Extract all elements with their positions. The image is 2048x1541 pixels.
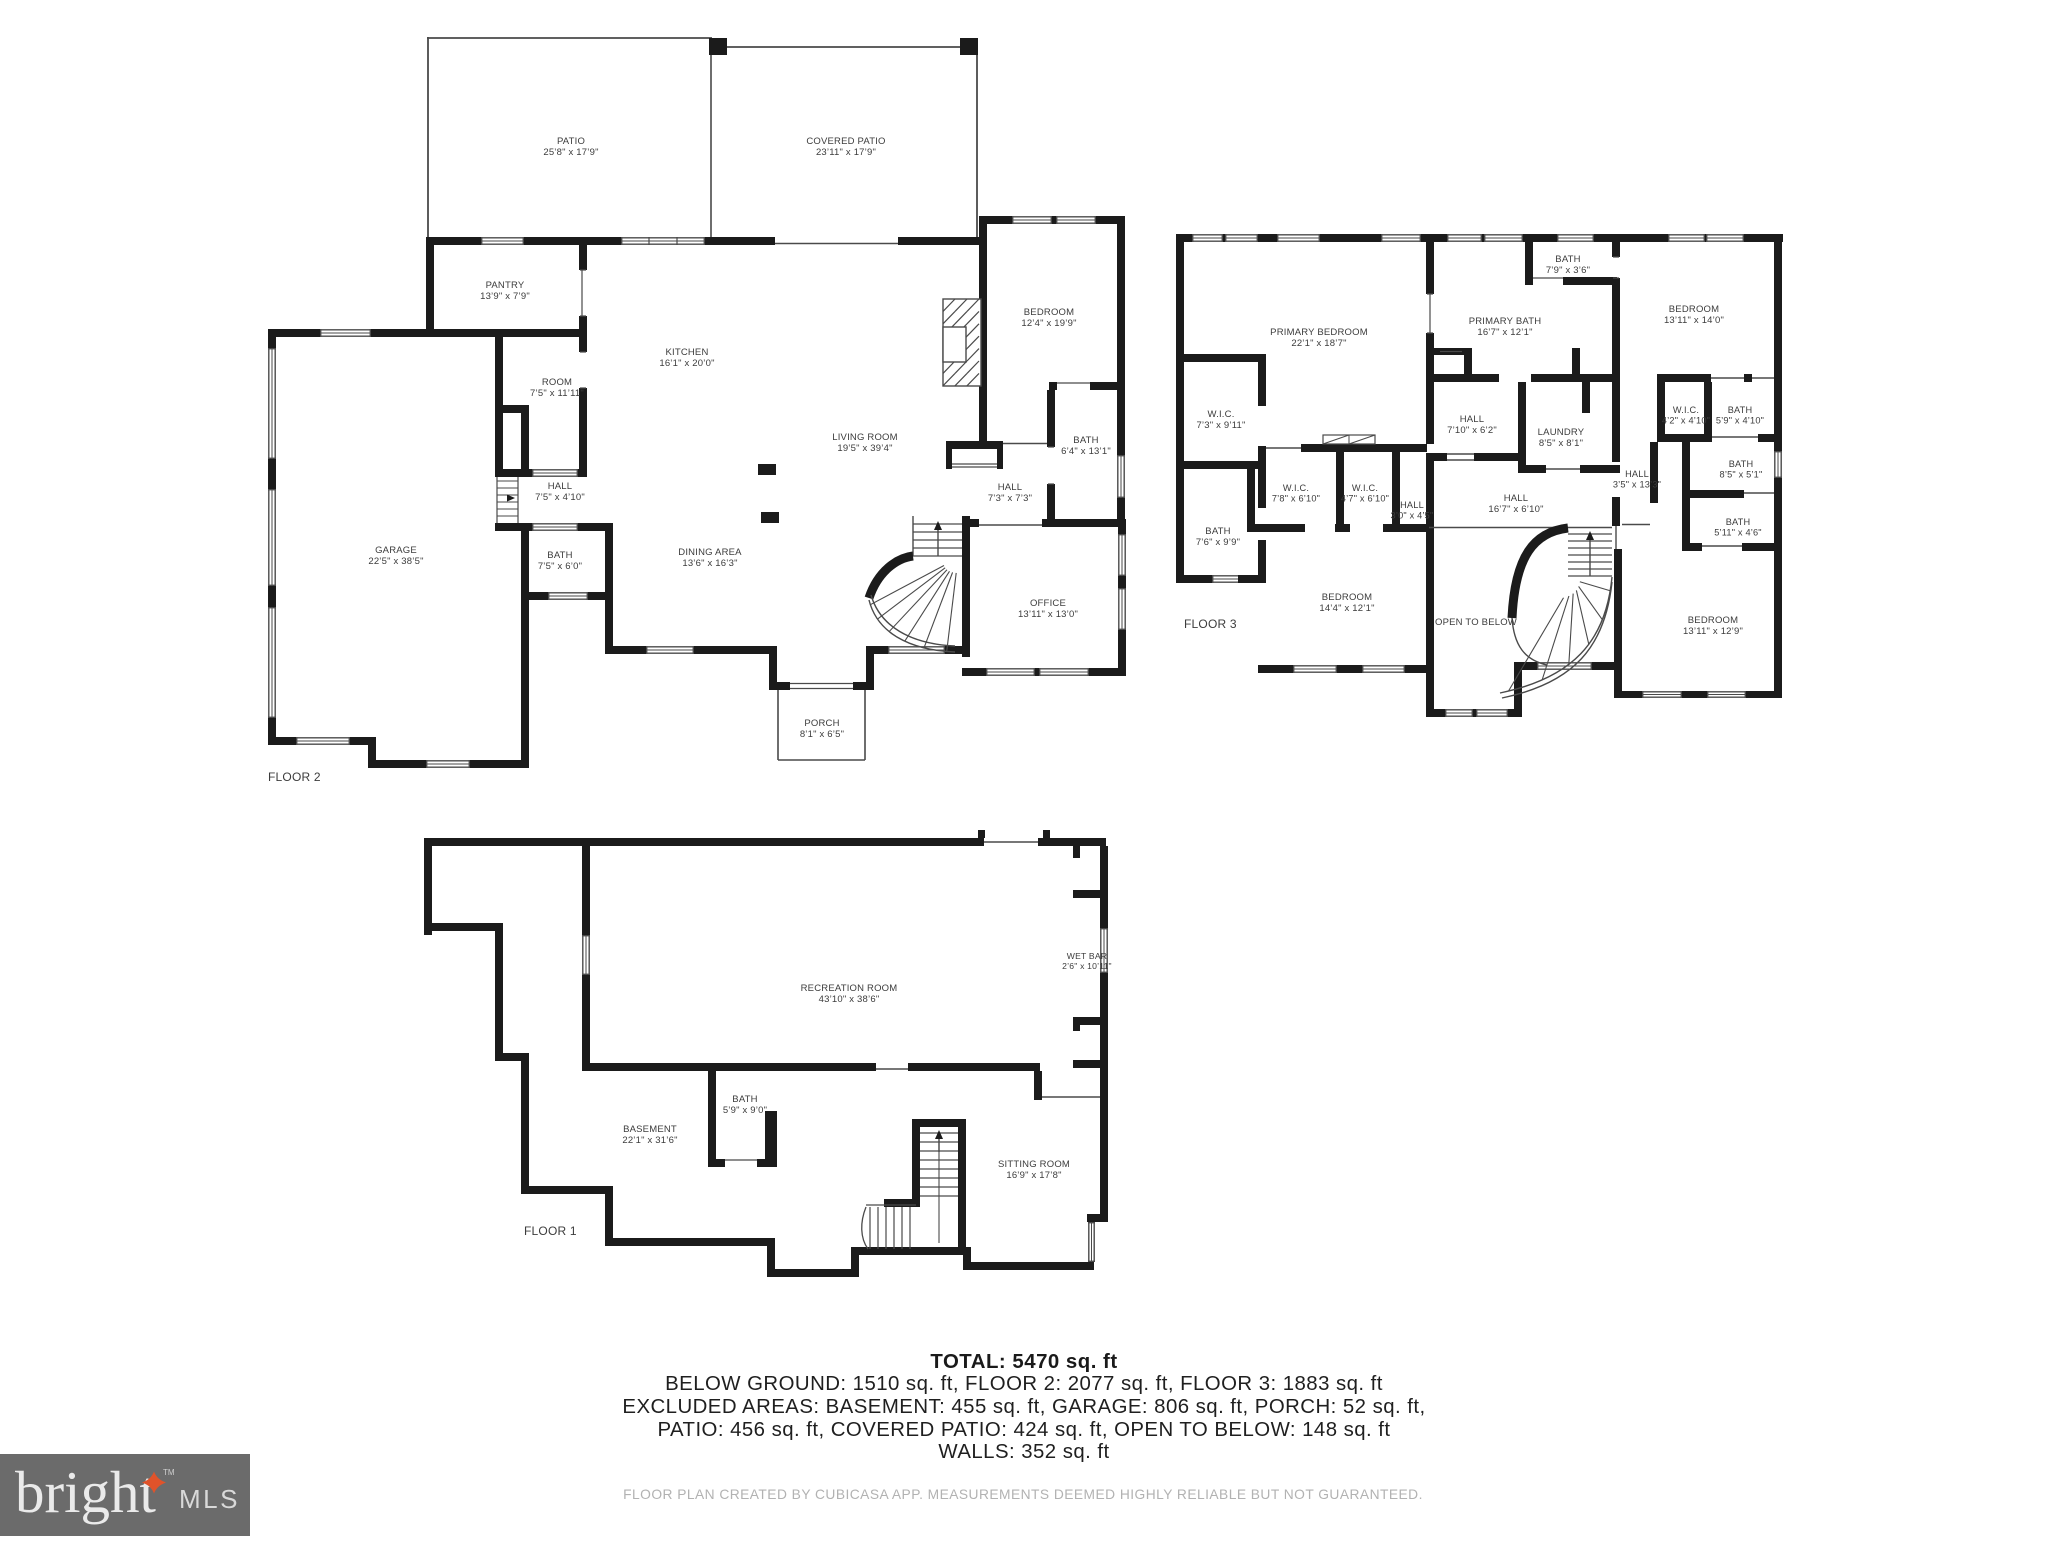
svg-text:22’1" x 18’7": 22’1" x 18’7" bbox=[1291, 338, 1346, 349]
svg-text:FLOOR 3: FLOOR 3 bbox=[1184, 617, 1237, 631]
svg-text:14’4" x 12’1": 14’4" x 12’1" bbox=[1319, 603, 1374, 614]
svg-text:BATH: BATH bbox=[1205, 526, 1230, 537]
svg-text:5’11" x 4’6": 5’11" x 4’6" bbox=[1714, 528, 1762, 538]
svg-text:16’9" x 17’8": 16’9" x 17’8" bbox=[1006, 1170, 1061, 1181]
svg-text:RECREATION ROOM: RECREATION ROOM bbox=[801, 983, 898, 994]
svg-text:4’2" x 4’10": 4’2" x 4’10" bbox=[1662, 416, 1710, 426]
svg-text:BEDROOM: BEDROOM bbox=[1669, 304, 1720, 315]
svg-text:OPEN TO BELOW: OPEN TO BELOW bbox=[1435, 617, 1517, 628]
svg-text:BASEMENT: BASEMENT bbox=[623, 1124, 677, 1135]
svg-text:13’11" x 14’0": 13’11" x 14’0" bbox=[1664, 315, 1724, 326]
svg-text:HALL: HALL bbox=[998, 482, 1023, 493]
svg-text:FLOOR 1: FLOOR 1 bbox=[524, 1224, 577, 1238]
svg-text:PATIO: PATIO bbox=[557, 136, 585, 147]
svg-text:PRIMARY BEDROOM: PRIMARY BEDROOM bbox=[1270, 327, 1368, 338]
svg-text:TM: TM bbox=[163, 1468, 175, 1477]
svg-text:OFFICE: OFFICE bbox=[1030, 598, 1066, 609]
svg-text:7’8" x 6’10": 7’8" x 6’10" bbox=[1272, 494, 1320, 504]
svg-text:43’10" x 38’6": 43’10" x 38’6" bbox=[819, 994, 880, 1005]
svg-text:BATH: BATH bbox=[1726, 517, 1751, 527]
svg-text:23’11" x 17’9": 23’11" x 17’9" bbox=[816, 147, 876, 158]
svg-text:PORCH: PORCH bbox=[804, 718, 839, 729]
svg-text:GARAGE: GARAGE bbox=[375, 545, 417, 556]
svg-text:13’9" x 7’9": 13’9" x 7’9" bbox=[480, 291, 530, 302]
svg-text:25’8" x 17’9": 25’8" x 17’9" bbox=[543, 147, 598, 158]
svg-text:BATH: BATH bbox=[1729, 459, 1754, 469]
svg-text:BEDROOM: BEDROOM bbox=[1024, 307, 1075, 318]
svg-text:BATH: BATH bbox=[1728, 405, 1753, 415]
svg-text:HALL: HALL bbox=[548, 481, 573, 492]
svg-text:4’7" x 6’10": 4’7" x 6’10" bbox=[1341, 494, 1389, 504]
svg-text:DINING AREA: DINING AREA bbox=[678, 547, 742, 558]
svg-text:16’1" x 20’0": 16’1" x 20’0" bbox=[659, 358, 714, 369]
svg-text:3’5" x 13’3": 3’5" x 13’3" bbox=[1613, 480, 1661, 490]
svg-text:W.I.C.: W.I.C. bbox=[1352, 483, 1378, 493]
svg-text:13’11" x 12’9": 13’11" x 12’9" bbox=[1683, 626, 1743, 637]
svg-text:PRIMARY BATH: PRIMARY BATH bbox=[1469, 316, 1542, 327]
svg-text:MLS: MLS bbox=[179, 1484, 240, 1514]
svg-text:BEDROOM: BEDROOM bbox=[1322, 592, 1373, 603]
svg-text:7’3" x 9’11": 7’3" x 9’11" bbox=[1196, 420, 1245, 431]
svg-text:TOTAL: 5470 sq. ft: TOTAL: 5470 sq. ft bbox=[930, 1351, 1117, 1373]
svg-text:BEDROOM: BEDROOM bbox=[1688, 615, 1739, 626]
svg-text:W.I.C.: W.I.C. bbox=[1283, 483, 1309, 493]
svg-text:2’6" x 10’11": 2’6" x 10’11" bbox=[1062, 961, 1112, 971]
svg-text:19’5" x 39’4": 19’5" x 39’4" bbox=[837, 443, 892, 454]
svg-text:W.I.C.: W.I.C. bbox=[1207, 409, 1234, 420]
svg-text:KITCHEN: KITCHEN bbox=[665, 347, 708, 358]
svg-text:PATIO: 456 sq. ft, COVERED PAT: PATIO: 456 sq. ft, COVERED PATIO: 424 sq… bbox=[657, 1419, 1390, 1441]
svg-text:7’5" x 11’11": 7’5" x 11’11" bbox=[530, 388, 584, 399]
svg-text:bright: bright bbox=[15, 1459, 157, 1525]
svg-text:16’7" x 6’10": 16’7" x 6’10" bbox=[1488, 504, 1543, 515]
svg-text:8’5" x 8’1": 8’5" x 8’1" bbox=[1539, 438, 1583, 449]
svg-text:LIVING ROOM: LIVING ROOM bbox=[832, 432, 898, 443]
svg-text:8’1" x 6’5": 8’1" x 6’5" bbox=[800, 729, 844, 740]
svg-text:EXCLUDED AREAS: BASEMENT: 455: EXCLUDED AREAS: BASEMENT: 455 sq. ft, GA… bbox=[622, 1396, 1425, 1418]
svg-text:FLOOR 2: FLOOR 2 bbox=[268, 770, 321, 784]
svg-text:22’5" x 38’5": 22’5" x 38’5" bbox=[368, 556, 423, 567]
svg-text:16’7" x 12’1": 16’7" x 12’1" bbox=[1477, 327, 1532, 338]
svg-text:5’9" x 4’10": 5’9" x 4’10" bbox=[1716, 416, 1764, 426]
svg-text:HALL: HALL bbox=[1460, 414, 1485, 425]
svg-text:PANTRY: PANTRY bbox=[486, 280, 525, 291]
svg-text:7’9" x 3’6": 7’9" x 3’6" bbox=[1546, 265, 1590, 276]
svg-text:ROOM: ROOM bbox=[542, 377, 572, 388]
svg-text:W.I.C.: W.I.C. bbox=[1673, 405, 1699, 415]
svg-text:HALL: HALL bbox=[1504, 493, 1529, 504]
svg-text:22’1" x 31’6": 22’1" x 31’6" bbox=[622, 1135, 677, 1146]
svg-text:BELOW GROUND: 1510 sq. ft, FLO: BELOW GROUND: 1510 sq. ft, FLOOR 2: 2077… bbox=[665, 1373, 1383, 1395]
svg-text:WALLS: 352 sq. ft: WALLS: 352 sq. ft bbox=[938, 1441, 1109, 1463]
svg-text:WET BAR: WET BAR bbox=[1067, 951, 1107, 961]
svg-text:BATH: BATH bbox=[732, 1094, 757, 1105]
svg-text:8’5" x 5’1": 8’5" x 5’1" bbox=[1720, 470, 1763, 480]
svg-text:12’4" x 19’9": 12’4" x 19’9" bbox=[1021, 318, 1076, 329]
svg-text:7’3" x 7’3": 7’3" x 7’3" bbox=[988, 493, 1032, 504]
svg-text:3’0" x 4’5": 3’0" x 4’5" bbox=[1391, 511, 1434, 521]
svg-text:COVERED PATIO: COVERED PATIO bbox=[806, 136, 885, 147]
svg-text:FLOOR PLAN CREATED BY CUBICASA: FLOOR PLAN CREATED BY CUBICASA APP. MEAS… bbox=[623, 1487, 1423, 1502]
svg-text:7’5" x 6’0": 7’5" x 6’0" bbox=[538, 561, 582, 572]
svg-text:BATH: BATH bbox=[547, 550, 572, 561]
svg-text:SITTING ROOM: SITTING ROOM bbox=[998, 1159, 1070, 1170]
svg-text:13’11" x 13’0": 13’11" x 13’0" bbox=[1018, 609, 1078, 620]
svg-text:13’6" x 16’3": 13’6" x 16’3" bbox=[682, 558, 737, 569]
svg-text:5’9" x 9’0": 5’9" x 9’0" bbox=[723, 1105, 767, 1116]
svg-text:7’6" x 9’9": 7’6" x 9’9" bbox=[1196, 537, 1240, 548]
svg-text:BATH: BATH bbox=[1073, 435, 1098, 446]
svg-text:HALL: HALL bbox=[1625, 469, 1649, 479]
svg-text:LAUNDRY: LAUNDRY bbox=[1538, 427, 1585, 438]
svg-text:6’4" x 13’1": 6’4" x 13’1" bbox=[1061, 446, 1111, 457]
svg-text:7’10" x 6’2": 7’10" x 6’2" bbox=[1447, 425, 1497, 436]
svg-text:BATH: BATH bbox=[1555, 254, 1580, 265]
svg-text:HALL: HALL bbox=[1400, 500, 1424, 510]
svg-text:7’5" x 4’10": 7’5" x 4’10" bbox=[535, 492, 585, 503]
